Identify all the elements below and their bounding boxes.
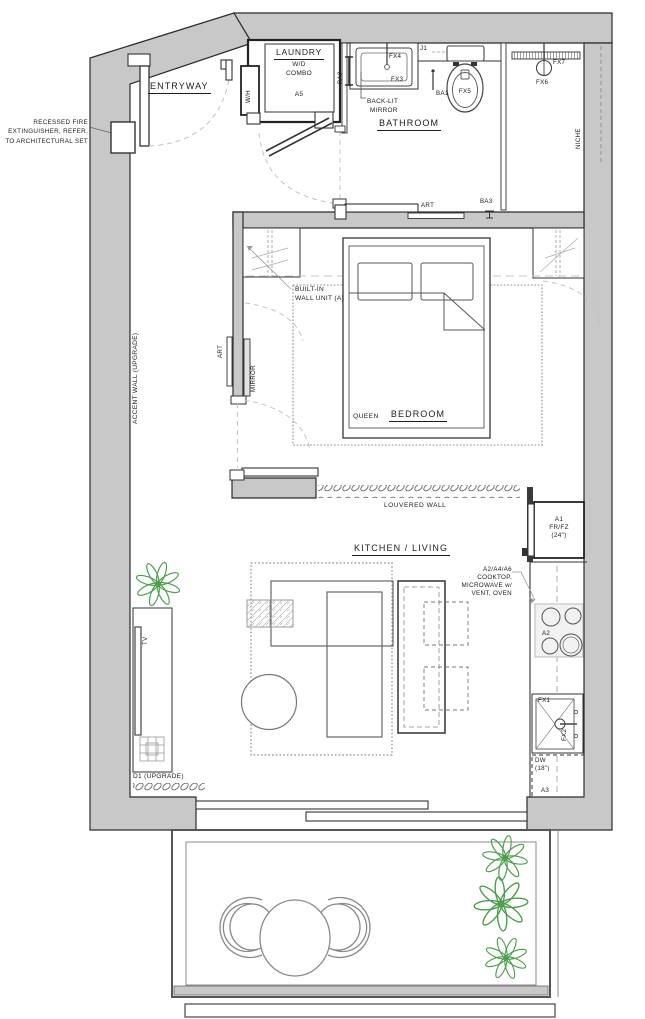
wall-bedroom-bottom-stub bbox=[232, 478, 316, 498]
fridge-label-a1: A1 bbox=[534, 516, 584, 524]
bedroom-label: BEDROOM bbox=[388, 409, 448, 422]
laundry-code-label: A5 bbox=[267, 91, 331, 99]
pillow bbox=[358, 263, 412, 300]
closet-door-arc-1 bbox=[245, 303, 303, 341]
backlit-mirror-note-2: MIRROR bbox=[370, 107, 398, 115]
laundry-label: LAUNDRY bbox=[267, 47, 331, 60]
shower-drain-fx7 bbox=[512, 52, 580, 59]
sofa-chaise bbox=[327, 592, 382, 737]
ba3-label: BA3 bbox=[480, 198, 493, 206]
niche-label: NICHE bbox=[575, 128, 583, 149]
backlit-mirror-note-1: BACK-LIT bbox=[367, 98, 398, 106]
built-in-note-2: WALL UNIT (A) bbox=[295, 295, 344, 303]
bedroom-elements bbox=[227, 228, 601, 480]
queen-label: QUEEN bbox=[353, 413, 379, 421]
pillow bbox=[421, 263, 473, 300]
bathroom-label: BATHROOM bbox=[377, 118, 441, 131]
coffee-table bbox=[242, 675, 297, 730]
bath-door-swing-arc bbox=[259, 133, 340, 204]
balcony-table bbox=[260, 900, 330, 976]
wall-bedroom-left-stub bbox=[233, 212, 243, 397]
floor-plan-drawing bbox=[0, 0, 645, 1019]
entry-door-leaf bbox=[140, 66, 149, 146]
kitchen-island bbox=[398, 581, 468, 733]
toilet bbox=[447, 46, 484, 112]
ba2-label: BA2 bbox=[337, 71, 345, 84]
accent-wall-note: ACCENT WALL (UPGRADE) bbox=[132, 333, 140, 424]
tv-console bbox=[133, 608, 172, 772]
ba1-label: BA1 bbox=[436, 90, 449, 98]
j1-label: J1 bbox=[420, 45, 427, 53]
appliance-callout: A2/A4/A6 COOKTOP, MICROWAVE w/ VENT, OVE… bbox=[442, 566, 512, 597]
water-heater-label: W/H bbox=[245, 90, 253, 103]
fx1-label: FX1 bbox=[538, 697, 550, 705]
fx3-label: FX3 bbox=[391, 76, 403, 84]
art-side-label: ART bbox=[217, 345, 225, 358]
tv-screen bbox=[135, 627, 141, 735]
closet-door-arc-2 bbox=[244, 400, 310, 450]
kitchen-living-label: KITCHEN / LIVING bbox=[352, 543, 444, 556]
art-ledge bbox=[408, 213, 464, 219]
plant bbox=[130, 556, 187, 613]
entry-door-swing-arc bbox=[149, 64, 231, 146]
fx2-label: FX2 bbox=[561, 729, 569, 741]
fx5-label: FX5 bbox=[457, 88, 473, 96]
balcony bbox=[172, 830, 558, 1017]
fridge-label-type: FR/FZ bbox=[534, 524, 584, 532]
kitchen bbox=[512, 502, 587, 797]
dw-size-label: (18") bbox=[535, 765, 550, 773]
louvered-wall bbox=[318, 485, 520, 498]
ottoman bbox=[247, 600, 293, 627]
art-shelf-side bbox=[227, 337, 232, 386]
balcony-rail bbox=[185, 1004, 555, 1017]
wall-top bbox=[234, 13, 612, 43]
laundry-combo-label: COMBO bbox=[267, 70, 331, 78]
fx4-label: FX4 bbox=[389, 53, 401, 61]
queen-bed bbox=[343, 238, 490, 438]
d1-louver bbox=[133, 783, 205, 794]
louvered-wall-label: LOUVERED WALL bbox=[384, 502, 446, 510]
laundry-wd-label: W/D bbox=[267, 61, 331, 69]
art-top-label: ART bbox=[421, 202, 434, 210]
fx6-label: FX6 bbox=[536, 79, 548, 87]
a3-label: A3 bbox=[541, 787, 549, 795]
bathroom-sink bbox=[356, 48, 412, 86]
dw-label: DW bbox=[535, 757, 546, 765]
entryway-label: ENTRYWAY bbox=[148, 81, 212, 94]
floor-plan: ENTRYWAY RECESSED FIRE EXTINGUISHER, REF… bbox=[0, 0, 645, 1019]
d1-upgrade-label: D1 (UPGRADE) bbox=[133, 773, 184, 781]
fx7-label: FX7 bbox=[553, 59, 565, 67]
living-room bbox=[130, 556, 468, 794]
closet-right bbox=[533, 228, 584, 278]
appliance-callout-leader bbox=[512, 572, 535, 600]
cooktop-label-a2: A2 bbox=[542, 630, 550, 638]
fridge-label-size: (24") bbox=[534, 532, 584, 540]
fire-extinguisher-note: RECESSED FIRE EXTINGUISHER, REFER. TO AR… bbox=[2, 118, 88, 146]
sliding-door bbox=[196, 801, 527, 821]
tv-label: TV bbox=[142, 636, 150, 645]
mirror-label: MIRROR bbox=[250, 365, 258, 392]
built-in-note-1: BUILT-IN bbox=[295, 286, 324, 294]
shower bbox=[512, 43, 580, 76]
